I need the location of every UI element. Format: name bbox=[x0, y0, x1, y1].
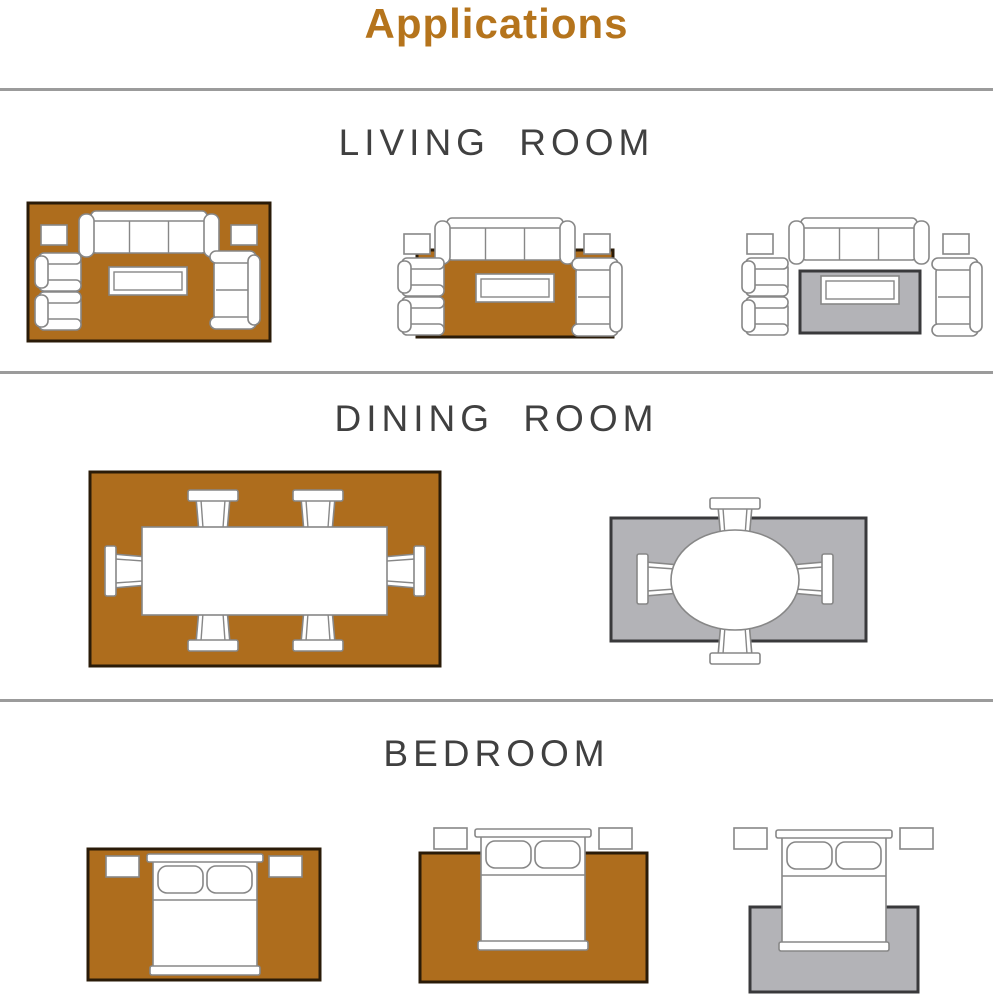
section-heading-dining-room: DINING ROOM bbox=[0, 398, 993, 440]
side-table bbox=[747, 234, 773, 254]
sofa bbox=[435, 218, 575, 264]
loveseat bbox=[932, 258, 982, 336]
living-room-diagram-rug-under-all bbox=[20, 195, 278, 350]
sofa bbox=[79, 211, 219, 257]
bedroom-diagram-rug-under-all bbox=[84, 843, 326, 988]
armchair bbox=[35, 292, 81, 330]
armchair bbox=[398, 258, 444, 296]
coffee-table bbox=[476, 274, 554, 302]
sofa bbox=[789, 218, 929, 264]
dining-room-diagram-rug-under-all bbox=[80, 465, 450, 675]
nightstand bbox=[434, 828, 467, 849]
coffee-table bbox=[821, 276, 899, 304]
armchair bbox=[35, 253, 81, 291]
bedroom-diagram-rug-foot-of-bed bbox=[728, 820, 968, 999]
divider bbox=[0, 371, 993, 374]
coffee-table bbox=[109, 267, 187, 295]
round-dining-table bbox=[671, 530, 799, 630]
section-heading-living-room: LIVING ROOM bbox=[0, 122, 993, 164]
bedroom-diagram-rug-two-thirds bbox=[415, 820, 655, 992]
side-table bbox=[404, 234, 430, 254]
divider bbox=[0, 88, 993, 91]
bed bbox=[776, 830, 892, 951]
nightstand bbox=[106, 856, 139, 877]
side-table bbox=[231, 225, 257, 245]
side-table bbox=[943, 234, 969, 254]
living-room-diagram-rug-coffee-table bbox=[734, 198, 990, 350]
page-title: Applications bbox=[0, 0, 993, 48]
dining-table bbox=[142, 527, 387, 615]
living-room-diagram-rug-front-legs bbox=[392, 198, 644, 350]
side-table bbox=[41, 225, 67, 245]
nightstand bbox=[734, 828, 767, 849]
side-table bbox=[584, 234, 610, 254]
rug-applications-infographic: Applications LIVING ROOM DINING ROOM bbox=[0, 0, 993, 999]
divider bbox=[0, 699, 993, 702]
loveseat bbox=[572, 258, 622, 336]
nightstand bbox=[900, 828, 933, 849]
armchair bbox=[398, 297, 444, 335]
armchair bbox=[742, 297, 788, 335]
dining-room-diagram-small-rug bbox=[600, 468, 890, 678]
armchair bbox=[742, 258, 788, 296]
nightstand bbox=[269, 856, 302, 877]
section-heading-bedroom: BEDROOM bbox=[0, 733, 993, 775]
loveseat bbox=[210, 251, 260, 329]
bed bbox=[475, 829, 591, 950]
bed bbox=[147, 854, 263, 975]
nightstand bbox=[599, 828, 632, 849]
